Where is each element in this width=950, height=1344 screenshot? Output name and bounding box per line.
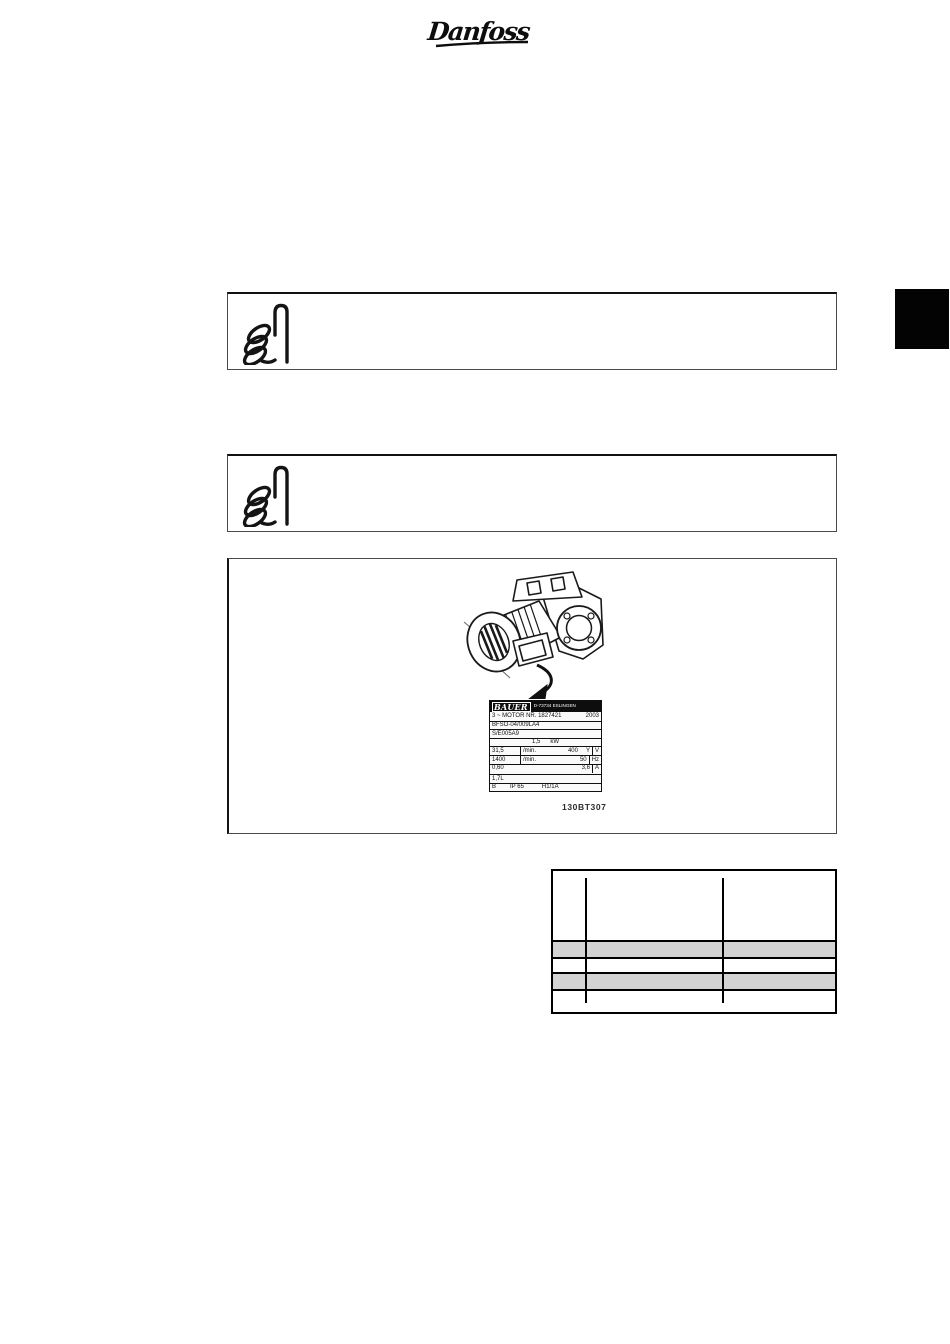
nameplate-row-oil: 1,7L [490, 774, 601, 783]
danfoss-logo: Danfoss [426, 12, 538, 58]
attention-hand-icon [241, 463, 293, 527]
nameplate-row-type: BFSO-04/009LA4 [490, 721, 601, 730]
table-column-divider [722, 878, 724, 1003]
nameplate-connection: Y [586, 747, 590, 755]
table-row-highlight [553, 940, 835, 959]
nameplate-oil-volume: 1,7L [492, 775, 504, 783]
nameplate-output-speed: 31,5 [492, 747, 518, 755]
mounting-bracket [513, 572, 582, 601]
nameplate-row-power: 1,5 kW [490, 738, 601, 747]
attention-hand-icon [241, 301, 293, 365]
figure-box: BAUER D-73734 ESLINGEN 3 ~ MOTOR NR. 182… [227, 558, 837, 834]
nameplate-insulation-class: B [492, 783, 496, 791]
nameplate-row-frequency: 1400 /min. 50 Hz [490, 755, 601, 764]
note-box-2 [227, 454, 837, 532]
danfoss-logo-art: Danfoss [426, 12, 538, 58]
nameplate-voltage-unit: V [595, 747, 599, 755]
nameplate-current: 3,6 [582, 764, 590, 772]
nameplate-type-code: BFSO-04/009LA4 [492, 721, 539, 729]
nameplate-row-serial: S/E005A9 [490, 729, 601, 738]
nameplate-serial-code: S/E005A9 [492, 730, 519, 738]
nameplate-row-protection: B IP 65 H1/1A [490, 783, 601, 792]
gear-motor-illustration [451, 567, 637, 699]
nameplate-frequency-unit: Hz [592, 756, 599, 764]
chapter-thumb-tab [895, 289, 949, 349]
nameplate-brand: BAUER [492, 702, 531, 712]
motor-nameplate: BAUER D-73734 ESLINGEN 3 ~ MOTOR NR. 182… [489, 700, 602, 792]
figure-caption: 130BT307 [562, 802, 607, 812]
nameplate-power-value: 1,5 [532, 738, 540, 746]
document-page: Danfoss [0, 0, 950, 1344]
nameplate-power-unit: kW [550, 738, 559, 746]
nameplate-output-speed-unit: /min. [523, 747, 536, 755]
nameplate-cos-phi: 0,60 [492, 764, 518, 772]
nameplate-year: 2003 [586, 712, 599, 720]
nameplate-row-motor: 3 ~ MOTOR NR. 1827421 2003 [490, 712, 601, 721]
output-flange [557, 606, 601, 650]
nameplate-motor-line: 3 ~ MOTOR NR. 1827421 [492, 712, 561, 720]
nameplate-current-unit: A [595, 764, 599, 772]
arrow-to-nameplate [529, 665, 551, 699]
nameplate-address: D-73734 ESLINGEN [534, 702, 576, 710]
nameplate-header: BAUER D-73734 ESLINGEN [490, 701, 601, 712]
nameplate-motor-speed-unit: /min. [523, 756, 536, 764]
note-box-1 [227, 292, 837, 370]
nameplate-row-current: 0,60 3,6 A [490, 764, 601, 773]
spec-table [551, 869, 837, 1014]
nameplate-code: H1/1A [542, 783, 559, 791]
nameplate-voltage: 400 [568, 747, 578, 755]
nameplate-row-voltage: 31,5 /min. 400 Y V [490, 746, 601, 755]
nameplate-motor-speed: 1400 [492, 756, 518, 764]
nameplate-protection: IP 65 [510, 783, 524, 791]
table-column-divider [585, 878, 587, 1003]
nameplate-frequency: 50 [580, 756, 587, 764]
table-row-highlight [553, 972, 835, 991]
